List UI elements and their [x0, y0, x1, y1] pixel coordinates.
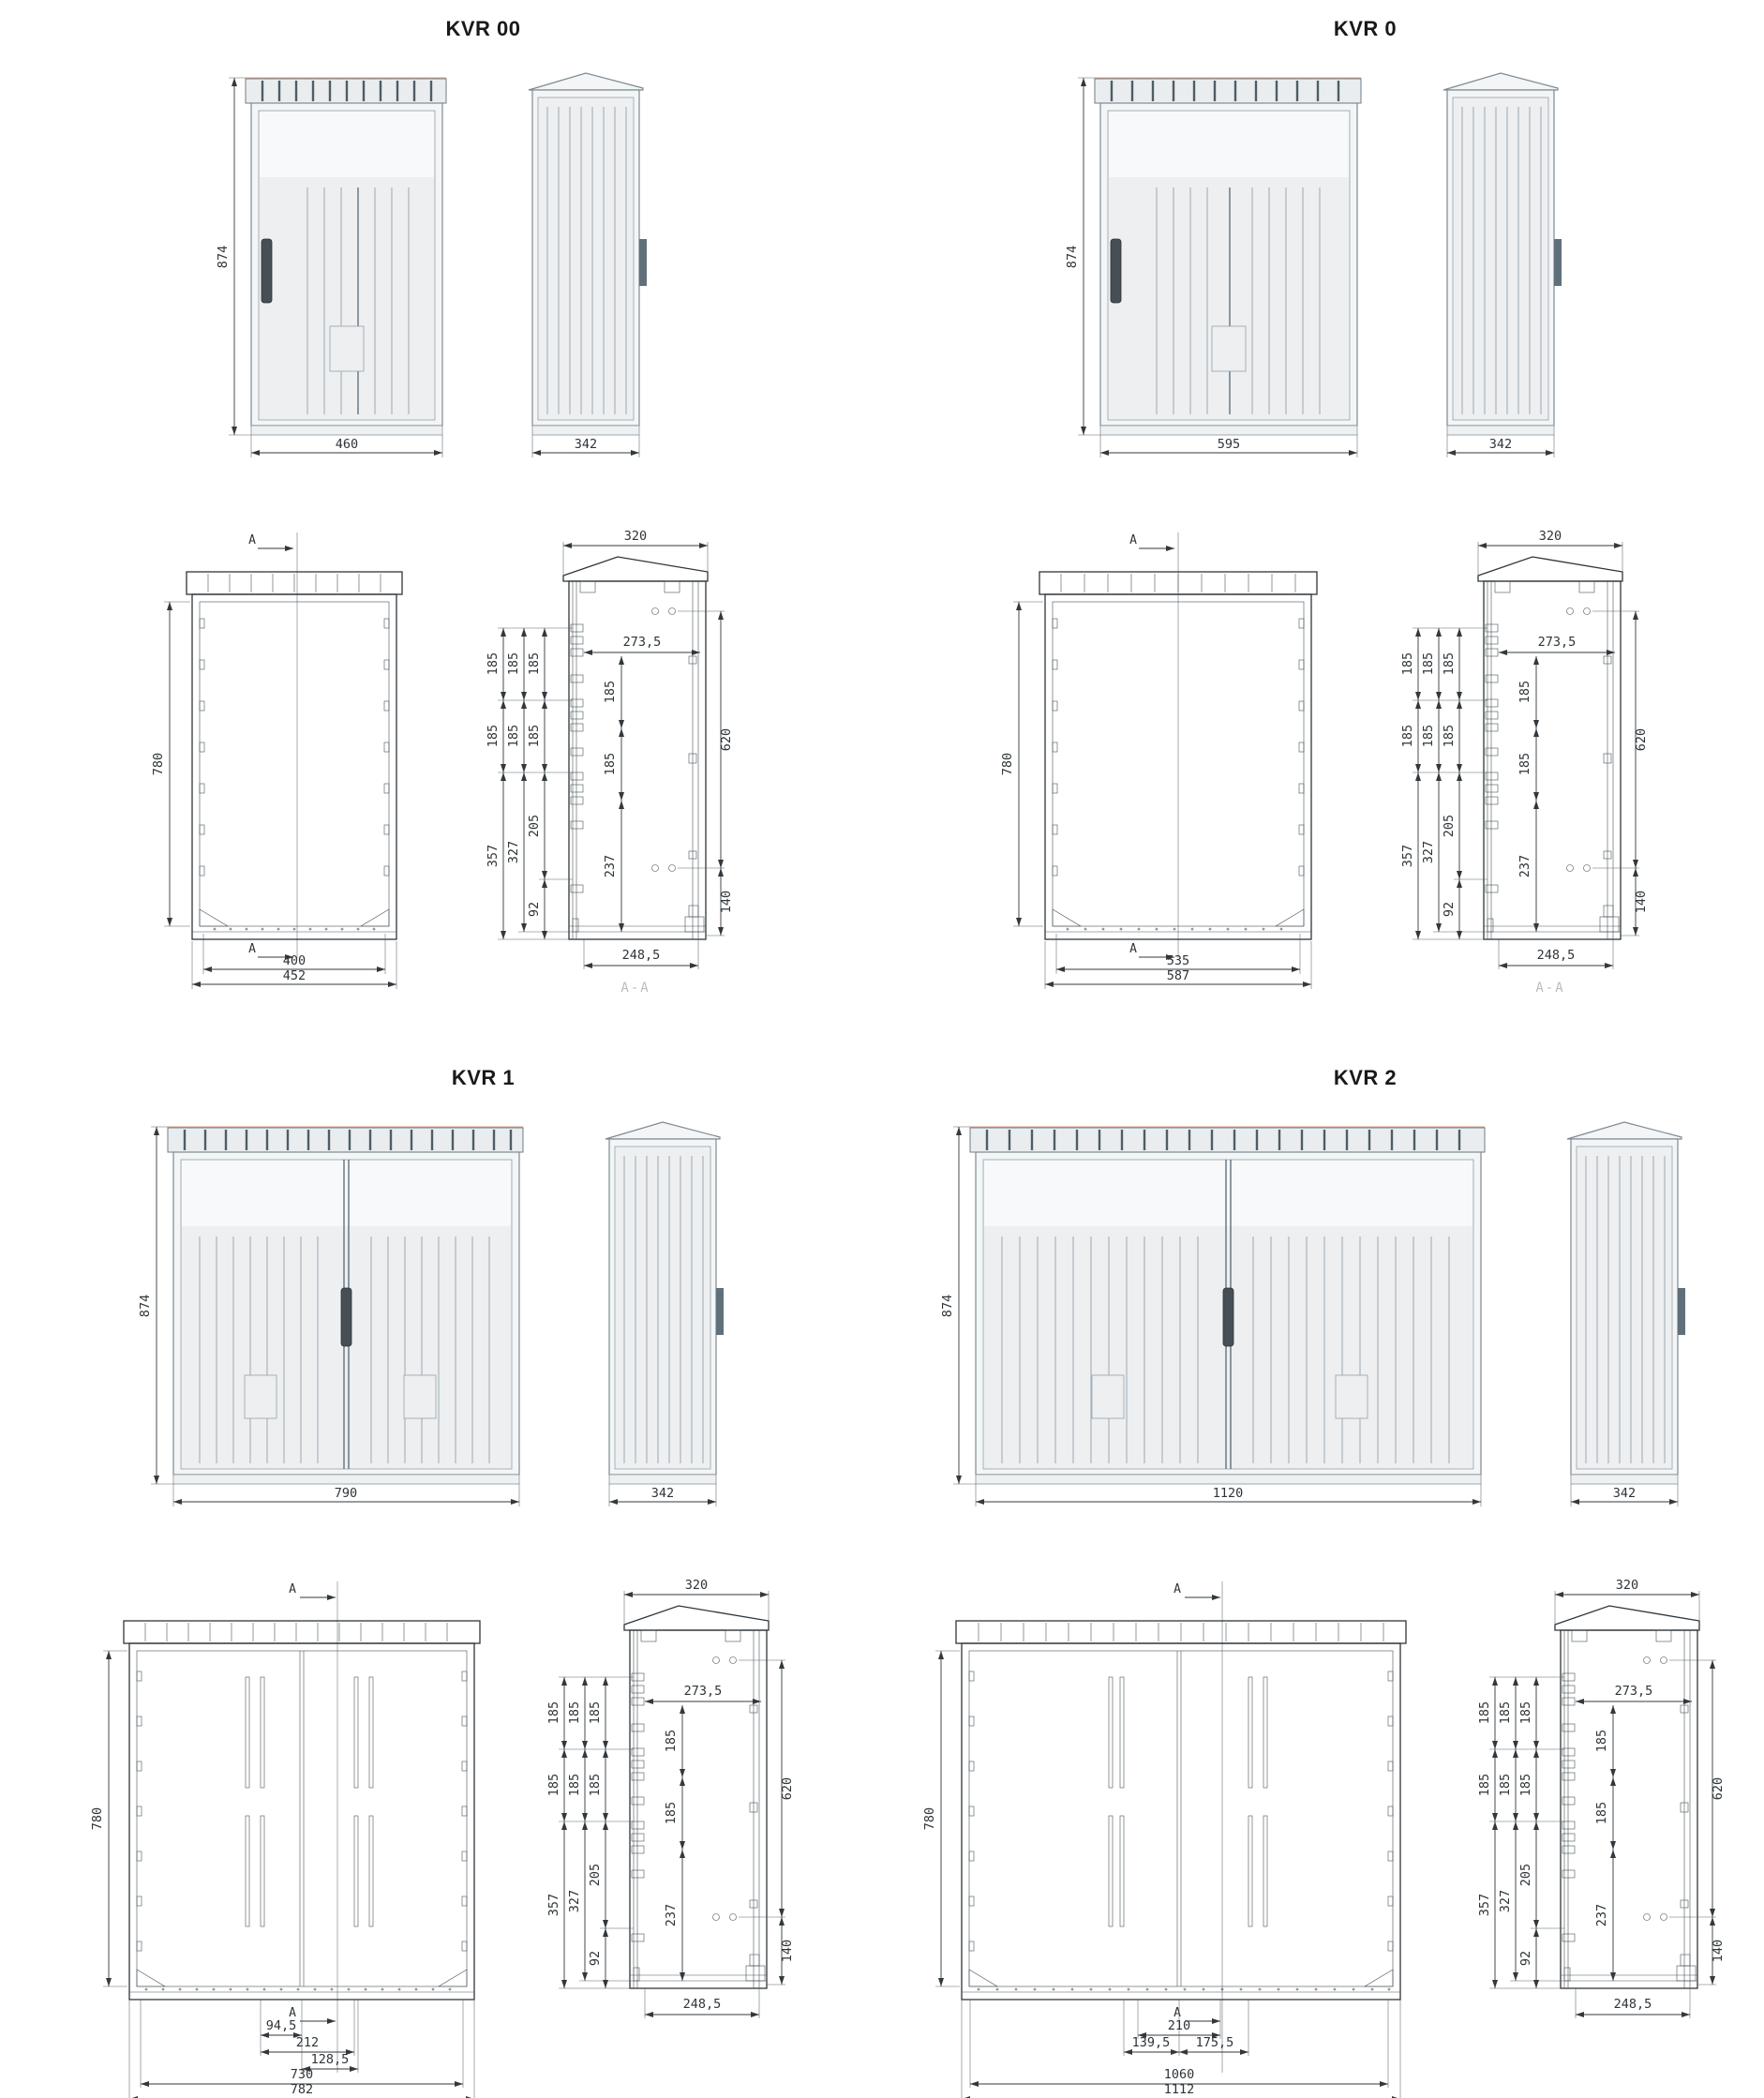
- dim-d2: 139,5: [1132, 2035, 1171, 2050]
- kvr2-side-render-dims: 342: [1571, 1484, 1678, 1506]
- dim-140: 140: [719, 891, 734, 913]
- dim-pitch: 185: [664, 1802, 679, 1824]
- dim-237: 237: [603, 855, 618, 877]
- kvr1-drawing-row: A 780 A 94,5 212 128,5 730 782: [88, 1566, 795, 2098]
- dim-pitch: 185: [506, 725, 521, 747]
- dim-205: 205: [1518, 1864, 1533, 1886]
- dim-outer-width: 782: [290, 2082, 312, 2097]
- drawing-sheet: KVR 00 874 460: [0, 0, 1764, 2098]
- section-label: A-A: [1535, 981, 1564, 996]
- dim-357: 357: [1400, 845, 1415, 867]
- label-plate: [245, 1375, 277, 1418]
- side-hinge: [1678, 1288, 1685, 1335]
- kvr0-side-section: 320 273,5 185 185 357 185 185 327 185 18…: [1396, 517, 1649, 1000]
- kvr0-front-render: 874 595: [1067, 47, 1367, 469]
- dim-d3: 128,5: [310, 2052, 349, 2067]
- dim-outer-width: 452: [282, 968, 305, 983]
- kvr1-front-render: 874 790: [140, 1096, 529, 1518]
- dim-327: 327: [1498, 1890, 1513, 1912]
- dim-outer-width: 587: [1166, 968, 1188, 983]
- kvr00-render-row: 874 460 342: [217, 47, 665, 469]
- dim-front-height: 780: [90, 1807, 105, 1830]
- door-handle: [1223, 1288, 1233, 1346]
- dim-d3: 175,5: [1196, 2035, 1234, 2050]
- dim-front-height: 780: [922, 1807, 937, 1830]
- dim-357: 357: [486, 845, 501, 867]
- kvr0-side-render: 342: [1421, 47, 1580, 469]
- dim-render-front-width: 790: [335, 1486, 357, 1501]
- kvr1-front-section: A 780 A 94,5 212 128,5 730 782: [88, 1566, 501, 2098]
- section-mark-top: A: [289, 1582, 296, 1596]
- kvr1-side-render: 342: [583, 1096, 742, 1518]
- side-hinge: [1554, 239, 1562, 286]
- panel-kvr0: KVR 0 874 595: [882, 0, 1764, 1049]
- dim-pitch: 185: [1498, 1774, 1513, 1796]
- dim-pitch: 185: [1477, 1774, 1492, 1796]
- front-section-outline: [187, 572, 402, 939]
- dim-205: 205: [527, 815, 542, 837]
- dim-pitch: 185: [603, 681, 618, 703]
- dim-render-front-width: 1120: [1213, 1486, 1244, 1501]
- dim-render-side-width: 342: [1613, 1486, 1636, 1501]
- dim-d2: 212: [295, 2035, 318, 2050]
- dim-render-side-width: 342: [651, 1486, 674, 1501]
- kvr2-render-row: 874 1120 342: [942, 1096, 1704, 1518]
- dim-bottom-width: 248,5: [1536, 948, 1575, 963]
- kvr0-front-section: A 780 A 535 587: [998, 517, 1354, 991]
- dim-620: 620: [719, 728, 734, 751]
- dim-pitch: 185: [1518, 1701, 1533, 1724]
- kvr0-render-row: 874 595 342: [1067, 47, 1580, 469]
- side-section-outline: [1555, 1606, 1699, 1988]
- dim-pitch: 185: [664, 1730, 679, 1752]
- dim-pitch: 185: [1517, 753, 1532, 775]
- dim-bottom-width: 248,5: [682, 1997, 721, 2012]
- dim-inner-width: 730: [290, 2067, 312, 2082]
- dim-side-top-width: 320: [684, 1578, 707, 1593]
- front-section-dims: A 780 A 94,5 212 128,5 730 782: [90, 1582, 474, 2098]
- dim-620: 620: [780, 1777, 795, 1800]
- dim-237: 237: [664, 1904, 679, 1926]
- dim-render-height: 874: [140, 1295, 153, 1317]
- dim-render-front-width: 460: [335, 437, 357, 452]
- dim-357: 357: [546, 1894, 561, 1916]
- dim-pitch: 185: [486, 652, 501, 675]
- cabinet-front-render: [168, 1127, 523, 1484]
- dim-inner-width: 1060: [1164, 2067, 1195, 2082]
- section-mark-top: A: [1129, 533, 1137, 547]
- model-title-kvr0: KVR 0: [1334, 17, 1397, 41]
- kvr1-side-section: 320 273,5 185 185 357 185 185 327 185 18…: [542, 1566, 795, 2049]
- kvr00-side-section: 320 273,5 185 185 357 185 185 327 185 18…: [481, 517, 734, 1000]
- kvr1-side-render-dims: 342: [609, 1484, 716, 1506]
- kvr00-front-render: 874 460: [217, 47, 452, 469]
- model-title-kvr1: KVR 1: [452, 1066, 515, 1090]
- kvr2-front-section: A 780 A 210 139,5 175,5 1060 1112: [920, 1566, 1431, 2098]
- label-plate: [1212, 326, 1246, 371]
- model-title-kvr2: KVR 2: [1334, 1066, 1397, 1090]
- dim-inner-width: 535: [1166, 953, 1188, 968]
- cabinet-side-render: [1443, 73, 1562, 435]
- kvr1-render-row: 874 790 342: [140, 1096, 742, 1518]
- kvr0-side-render-dims: 342: [1447, 435, 1554, 457]
- dim-side-top-width: 320: [623, 529, 646, 544]
- side-section-dims: 320 273,5 185 185 357 185 185 327 185 18…: [546, 1578, 795, 2018]
- dim-depth: 273,5: [1537, 635, 1576, 650]
- section-label: A-A: [620, 981, 650, 996]
- dim-pitch: 185: [567, 1774, 582, 1796]
- dim-pitch: 185: [546, 1774, 561, 1796]
- dim-140: 140: [1711, 1940, 1726, 1962]
- dim-327: 327: [567, 1890, 582, 1912]
- dim-render-height: 874: [942, 1295, 955, 1317]
- dim-237: 237: [1517, 855, 1532, 877]
- door-handle: [1111, 239, 1121, 303]
- dim-pitch: 185: [567, 1701, 582, 1724]
- kvr2-front-render: 874 1120: [942, 1096, 1490, 1518]
- side-section-dims: 320 273,5 185 185 357 185 185 327 185 18…: [1477, 1578, 1726, 2018]
- dim-pitch: 185: [486, 725, 501, 747]
- dim-bottom-width: 248,5: [621, 948, 660, 963]
- kvr00-front-section: A 780 A 400 452: [149, 517, 440, 991]
- dim-pitch: 185: [603, 753, 618, 775]
- dim-357: 357: [1477, 1894, 1492, 1916]
- dim-205: 205: [588, 1864, 603, 1886]
- side-hinge: [639, 239, 647, 286]
- kvr2-side-render: 342: [1545, 1096, 1704, 1518]
- dim-d1: 210: [1168, 2018, 1190, 2033]
- section-mark-bottom: A: [248, 942, 256, 956]
- dim-pitch: 185: [1421, 652, 1436, 675]
- dim-side-top-width: 320: [1538, 529, 1561, 544]
- dim-render-front-width: 595: [1217, 437, 1239, 452]
- cabinet-side-render: [529, 73, 647, 435]
- front-section-dims: A 780 A 210 139,5 175,5 1060 1112: [922, 1582, 1400, 2098]
- door-handle: [341, 1288, 351, 1346]
- dim-92: 92: [527, 902, 542, 917]
- side-section-outline: [1478, 557, 1622, 939]
- dim-render-side-width: 342: [574, 437, 596, 452]
- dim-bottom-width: 248,5: [1614, 1997, 1652, 2012]
- dim-92: 92: [588, 1951, 603, 1966]
- dim-depth: 273,5: [622, 635, 661, 650]
- dim-237: 237: [1594, 1904, 1609, 1926]
- dim-side-top-width: 320: [1616, 1578, 1638, 1593]
- label-plate: [1092, 1375, 1124, 1418]
- dim-pitch: 185: [1498, 1701, 1513, 1724]
- dim-pitch: 185: [1517, 681, 1532, 703]
- kvr2-drawing-row: A 780 A 210 139,5 175,5 1060 1112: [920, 1566, 1726, 2098]
- dim-front-height: 780: [151, 753, 166, 775]
- cabinet-front-render: [970, 1127, 1485, 1484]
- cabinet-front-render: [1095, 78, 1361, 435]
- kvr00-side-render-dims: 342: [532, 435, 639, 457]
- dim-pitch: 185: [1400, 725, 1415, 747]
- front-section-outline: [124, 1621, 480, 2000]
- dim-render-height: 874: [217, 246, 231, 268]
- cabinet-front-render: [246, 78, 446, 435]
- panel-kvr2: KVR 2 874 1: [882, 1049, 1764, 2098]
- kvr00-side-render: 342: [506, 47, 665, 469]
- section-mark-bottom: A: [1129, 942, 1137, 956]
- cabinet-side-render: [1567, 1122, 1685, 1484]
- dim-depth: 273,5: [1615, 1684, 1653, 1699]
- dim-140: 140: [780, 1940, 795, 1962]
- side-hinge: [716, 1288, 724, 1335]
- dim-pitch: 185: [546, 1701, 561, 1724]
- section-mark-top: A: [1174, 1582, 1181, 1596]
- dim-pitch: 185: [1594, 1802, 1609, 1824]
- dim-327: 327: [506, 841, 521, 863]
- side-section-outline: [563, 557, 708, 939]
- dim-92: 92: [1442, 902, 1457, 917]
- dim-pitch: 185: [506, 652, 521, 675]
- dim-620: 620: [1634, 728, 1649, 751]
- door-handle: [262, 239, 272, 303]
- dim-pitch: 185: [527, 652, 542, 675]
- label-plate: [330, 326, 364, 371]
- dim-outer-width: 1112: [1164, 2082, 1195, 2097]
- kvr0-drawing-row: A 780 A 535 587: [998, 517, 1649, 1000]
- dim-render-side-width: 342: [1488, 437, 1511, 452]
- kvr00-drawing-row: A 780 A 400 452: [149, 517, 734, 1000]
- section-mark-top: A: [248, 533, 256, 547]
- dim-620: 620: [1711, 1777, 1726, 1800]
- model-title-kvr00: KVR 00: [445, 17, 520, 41]
- dim-pitch: 185: [1442, 652, 1457, 675]
- dim-140: 140: [1634, 891, 1649, 913]
- dim-d1: 94,5: [265, 2018, 296, 2033]
- dim-pitch: 185: [527, 725, 542, 747]
- dim-inner-width: 400: [282, 953, 305, 968]
- cabinet-side-render: [605, 1122, 724, 1484]
- front-section-outline: [956, 1621, 1406, 2000]
- dim-pitch: 185: [1477, 1701, 1492, 1724]
- dim-pitch: 185: [588, 1774, 603, 1796]
- dim-327: 327: [1421, 841, 1436, 863]
- dim-92: 92: [1518, 1951, 1533, 1966]
- dim-render-height: 874: [1067, 246, 1080, 268]
- dim-pitch: 185: [1400, 652, 1415, 675]
- panel-kvr1: KVR 1 874 7: [0, 1049, 882, 2098]
- dim-pitch: 185: [1442, 725, 1457, 747]
- panel-kvr00: KVR 00 874 460: [0, 0, 882, 1049]
- dim-front-height: 780: [1000, 753, 1015, 775]
- dim-depth: 273,5: [683, 1684, 722, 1699]
- dim-205: 205: [1442, 815, 1457, 837]
- label-plate: [1336, 1375, 1368, 1418]
- dim-pitch: 185: [588, 1701, 603, 1724]
- label-plate: [404, 1375, 436, 1418]
- side-section-outline: [624, 1606, 769, 1988]
- dim-pitch: 185: [1421, 725, 1436, 747]
- dim-pitch: 185: [1518, 1774, 1533, 1796]
- dim-pitch: 185: [1594, 1730, 1609, 1752]
- sheet-grid: KVR 00 874 460: [0, 0, 1764, 2098]
- kvr2-side-section: 320 273,5 185 185 357 185 185 327 185 18…: [1472, 1566, 1726, 2049]
